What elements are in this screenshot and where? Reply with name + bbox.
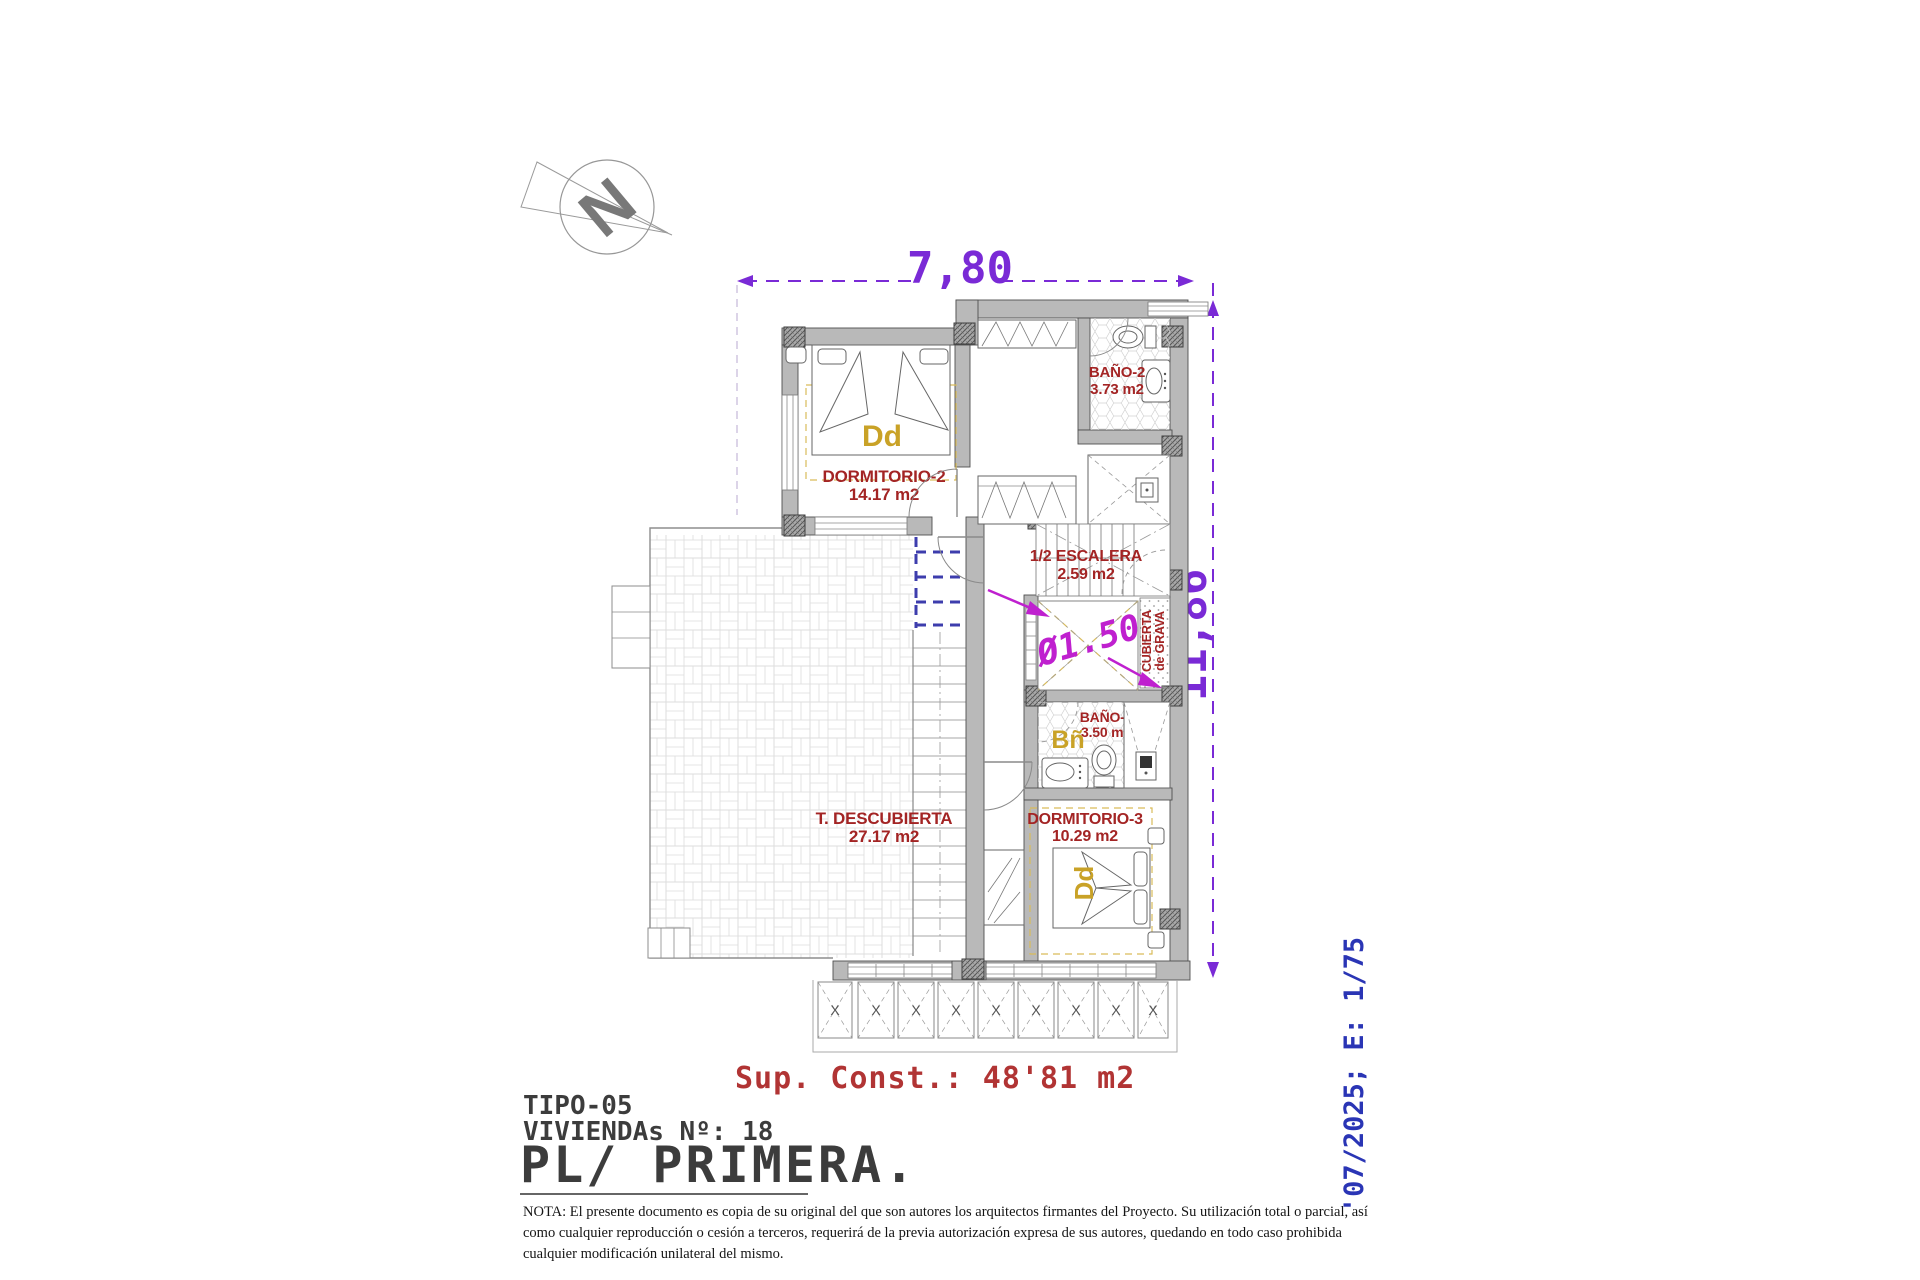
shower-icon (1088, 455, 1170, 524)
svg-text:X: X (991, 1002, 1001, 1018)
room-area-dormitorio2: 14.17 m2 (849, 485, 919, 504)
pergola-row: X X X X X X X X X (813, 980, 1177, 1052)
svg-text:X: X (951, 1002, 961, 1018)
date-scale-label: '07/2025; E: 1/75 (1339, 937, 1370, 1213)
nota-line-1: NOTA: El presente documento es copia de … (523, 1204, 1368, 1220)
north-arrow: N (521, 160, 672, 254)
window-bottom (848, 963, 1156, 978)
room-area-escalera: 2.59 m2 (1057, 566, 1115, 583)
room-area-terraza: 27.17 m2 (849, 827, 919, 846)
room-area-dormitorio3: 10.29 m2 (1052, 828, 1118, 845)
svg-text:X: X (911, 1002, 921, 1018)
room-area-bano2: 3.73 m2 (1090, 381, 1144, 398)
bed-double-icon (1053, 848, 1150, 928)
svg-text:X: X (1031, 1002, 1041, 1018)
exterior-stair (913, 630, 966, 956)
dim-arrow-right-icon (1178, 275, 1194, 287)
window-bano2-top (1148, 302, 1208, 316)
nightstand-icon (1148, 932, 1164, 948)
room-dormitorio2: Dd DORMITORIO-2 14.17 m2 (786, 345, 957, 517)
dim-arrow-left-icon (737, 275, 753, 287)
wardrobe-icon (978, 320, 1076, 348)
cubierta-label-2: de GRAVA (1153, 611, 1167, 671)
dim-width-label: 7,80 (907, 243, 1013, 294)
nota-line-3: cualquier modificación unilateral del mi… (523, 1246, 784, 1262)
room-dormitorio3: DORMITORIO-3 10.29 m2 Dd (1027, 808, 1164, 954)
vestibule (938, 537, 1032, 925)
room-label-terraza: T. DESCUBIERTA (816, 809, 953, 828)
bed-tag-dorm3: Dd (1069, 866, 1099, 901)
toilet-icon (1092, 745, 1116, 787)
dim-arrow-down-icon (1207, 962, 1219, 978)
room-label-escalera: 1/2 ESCALERA (1030, 548, 1143, 565)
room-label-dormitorio3: DORMITORIO-3 (1027, 811, 1143, 828)
floor-title: PL/ PRIMERA. (520, 1136, 917, 1194)
room-label-dormitorio2: DORMITORIO-2 (823, 467, 946, 486)
window-dorm2-bottom (815, 517, 907, 535)
svg-text:X: X (871, 1002, 881, 1018)
north-letter: N (565, 163, 649, 250)
terrace: T. DESCUBIERTA 27.17 m2 (612, 528, 966, 958)
dim-arrow-up-icon (1207, 300, 1219, 316)
sink-icon (1142, 360, 1170, 402)
nightstand-icon (786, 347, 806, 363)
svg-text:X: X (1148, 1002, 1158, 1018)
toilet-icon (1113, 326, 1156, 348)
wardrobes (978, 320, 1076, 524)
room-bano3: BAÑO-3 3.50 m2 Bñ (1038, 702, 1170, 788)
terrace-paving (650, 535, 913, 958)
pergola-boxes: X X X X X X X X X (818, 982, 1168, 1038)
wardrobe-icon (978, 476, 1076, 524)
built-area-label: Sup. Const.: 48'81 m2 (735, 1061, 1135, 1096)
svg-text:X: X (1071, 1002, 1081, 1018)
room-label-bano2: BAÑO-2 (1089, 363, 1145, 381)
stairs: 1/2 ESCALERA 2.59 m2 (1030, 524, 1170, 596)
nightstand-icon (1148, 828, 1164, 844)
floor-plan-canvas: N 7,80 11,86 (0, 0, 1920, 1280)
title-block: Sup. Const.: 48'81 m2 TIPO-05 VIVIENDAs … (520, 937, 1370, 1262)
bath-tag-bano3: Bñ (1051, 726, 1084, 754)
sink-icon (1042, 758, 1088, 788)
nota-line-2: como cualquier reproducción o cesión a t… (523, 1225, 1342, 1241)
room-bano2: BAÑO-2 3.73 m2 (1088, 318, 1170, 524)
drawing-sheet: N 7,80 11,86 (0, 0, 1920, 1280)
terrace-planter (612, 586, 650, 668)
lightwell: CUBIERTA de GRAVA Ø1.50 (988, 590, 1170, 690)
svg-text:X: X (830, 1002, 840, 1018)
bed-tag-dorm2: Dd (862, 420, 902, 453)
window-dorm2-left (782, 395, 798, 490)
shower-icon (1124, 702, 1170, 788)
svg-text:X: X (1111, 1002, 1121, 1018)
terrace-step (648, 928, 690, 958)
